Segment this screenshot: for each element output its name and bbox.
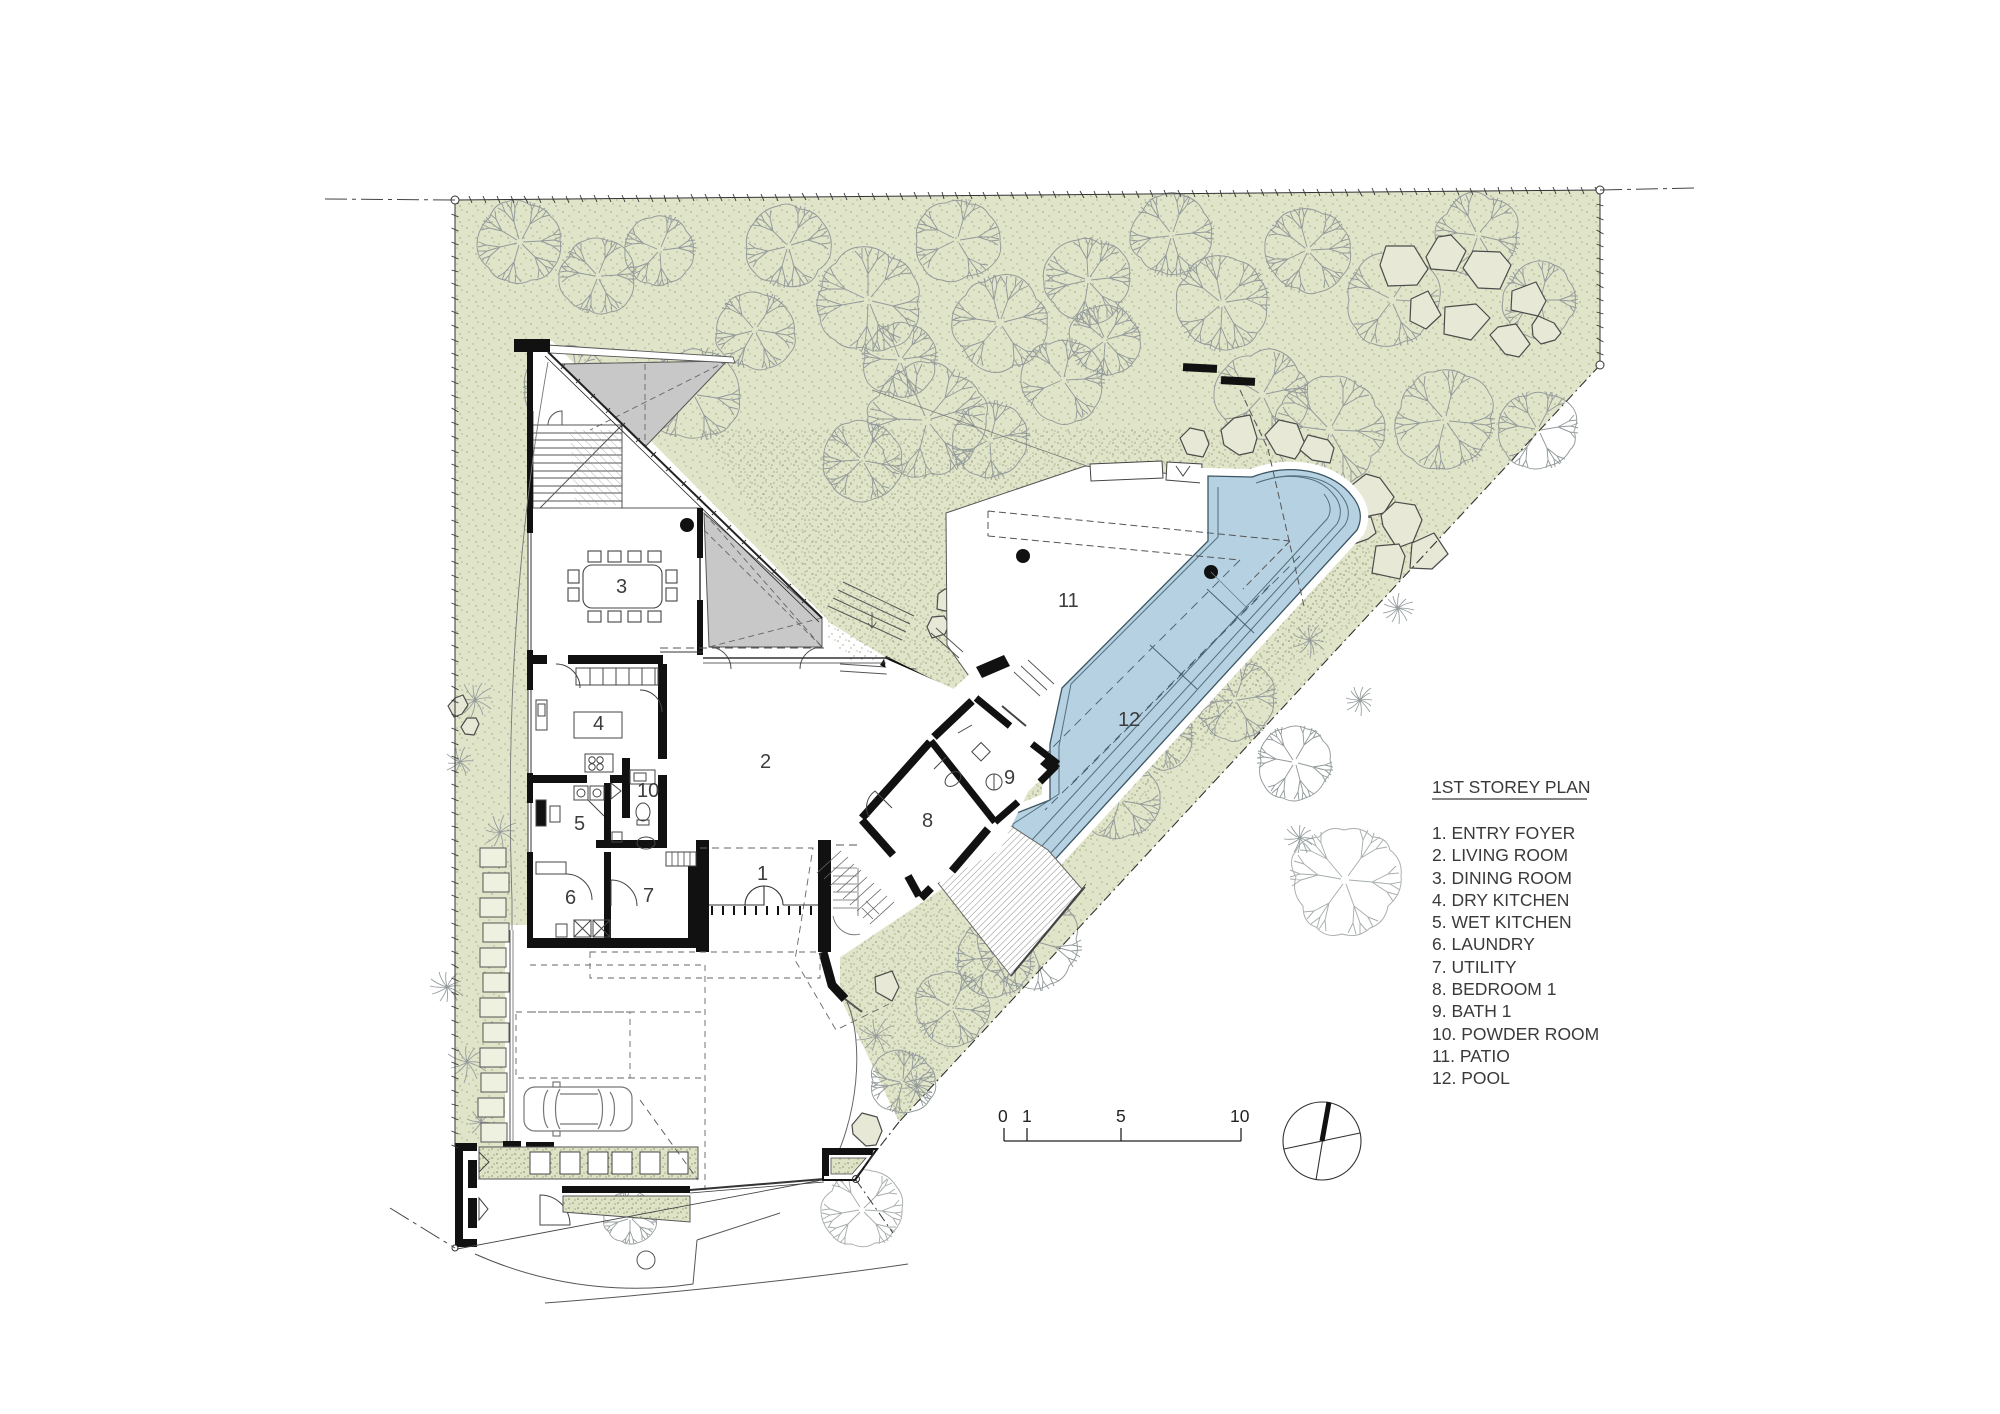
svg-text:8: 8 bbox=[922, 810, 933, 832]
svg-text:5: 5 bbox=[574, 813, 585, 835]
svg-text:10: 10 bbox=[1230, 1106, 1250, 1126]
svg-text:2: 2 bbox=[760, 751, 771, 773]
svg-text:9: 9 bbox=[1004, 767, 1015, 789]
svg-text:11: 11 bbox=[1058, 590, 1079, 612]
svg-text:5: 5 bbox=[1116, 1106, 1126, 1126]
svg-text:10. POWDER ROOM: 10. POWDER ROOM bbox=[1432, 1024, 1599, 1044]
svg-text:3: 3 bbox=[616, 576, 627, 598]
svg-text:1: 1 bbox=[757, 863, 768, 885]
svg-text:6. LAUNDRY: 6. LAUNDRY bbox=[1432, 934, 1535, 954]
svg-text:1. ENTRY FOYER: 1. ENTRY FOYER bbox=[1432, 823, 1575, 843]
svg-text:7. UTILITY: 7. UTILITY bbox=[1432, 957, 1517, 977]
svg-text:1ST STOREY PLAN: 1ST STOREY PLAN bbox=[1432, 777, 1591, 797]
svg-text:1: 1 bbox=[1022, 1106, 1032, 1126]
svg-text:8. BEDROOM 1: 8. BEDROOM 1 bbox=[1432, 979, 1556, 999]
svg-text:0: 0 bbox=[998, 1106, 1008, 1126]
svg-text:2. LIVING ROOM: 2. LIVING ROOM bbox=[1432, 845, 1568, 865]
svg-text:5. WET KITCHEN: 5. WET KITCHEN bbox=[1432, 912, 1572, 932]
svg-text:11. PATIO: 11. PATIO bbox=[1432, 1046, 1510, 1066]
svg-text:6: 6 bbox=[565, 887, 576, 909]
svg-text:12. POOL: 12. POOL bbox=[1432, 1068, 1510, 1088]
svg-text:9. BATH 1: 9. BATH 1 bbox=[1432, 1001, 1511, 1021]
svg-text:10: 10 bbox=[637, 780, 659, 802]
svg-text:4: 4 bbox=[593, 713, 604, 735]
svg-text:4. DRY KITCHEN: 4. DRY KITCHEN bbox=[1432, 890, 1569, 910]
svg-text:7: 7 bbox=[643, 885, 654, 907]
svg-text:12: 12 bbox=[1118, 709, 1140, 731]
svg-text:3. DINING ROOM: 3. DINING ROOM bbox=[1432, 868, 1572, 888]
